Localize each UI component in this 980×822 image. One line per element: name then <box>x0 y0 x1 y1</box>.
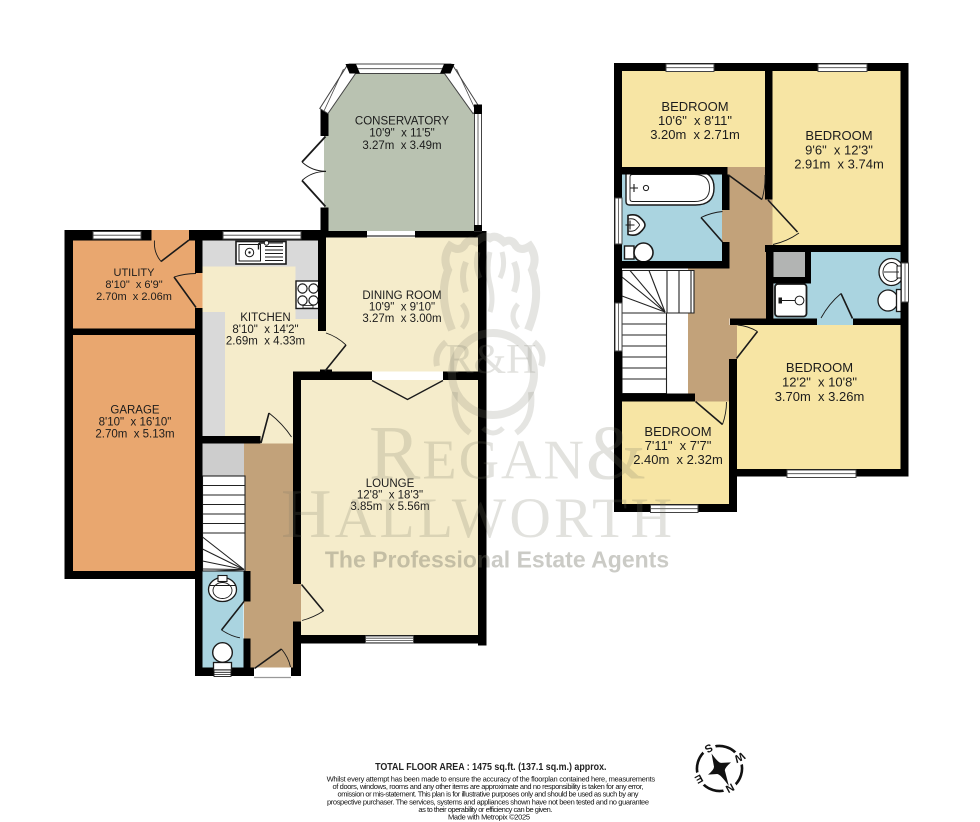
svg-text:8'10" x 14'2": 8'10" x 14'2" <box>232 324 298 336</box>
svg-text:BEDROOM: BEDROOM <box>644 424 711 439</box>
svg-text:The Professional Estate Agents: The Professional Estate Agents <box>325 547 669 573</box>
svg-text:2.70m x 2.06m: 2.70m x 2.06m <box>96 291 172 303</box>
svg-text:7'11" x 7'7": 7'11" x 7'7" <box>645 438 712 453</box>
svg-text:GARAGE: GARAGE <box>110 405 160 417</box>
svg-text:DINING ROOM: DINING ROOM <box>362 290 441 302</box>
svg-text:KITCHEN: KITCHEN <box>240 312 290 324</box>
svg-text:TOTAL FLOOR AREA : 1475 sq.ft.: TOTAL FLOOR AREA : 1475 sq.ft. (137.1 sq… <box>375 762 607 773</box>
svg-text:2.70m x 5.13m: 2.70m x 5.13m <box>95 429 174 441</box>
svg-text:Made with Metropix ©2025: Made with Metropix ©2025 <box>448 812 530 821</box>
svg-text:12'2" x 10'8": 12'2" x 10'8" <box>782 375 857 390</box>
svg-text:3.20m x 2.71m: 3.20m x 2.71m <box>650 127 740 142</box>
svg-text:R&H: R&H <box>445 337 536 383</box>
svg-text:3.70m x 3.26m: 3.70m x 3.26m <box>775 389 865 404</box>
svg-text:2.69m x 4.33m: 2.69m x 4.33m <box>226 336 305 348</box>
svg-text:BEDROOM: BEDROOM <box>805 128 872 143</box>
svg-text:CONSERVATORY: CONSERVATORY <box>355 116 449 128</box>
svg-text:10'6" x 8'11": 10'6" x 8'11" <box>658 113 732 128</box>
svg-text:3.27m x 3.00m: 3.27m x 3.00m <box>362 313 441 325</box>
svg-text:3.27m x 3.49m: 3.27m x 3.49m <box>362 140 441 152</box>
svg-text:BEDROOM: BEDROOM <box>661 99 728 114</box>
svg-text:2.91m x 3.74m: 2.91m x 3.74m <box>794 157 884 172</box>
svg-text:9'6" x 12'3": 9'6" x 12'3" <box>805 143 873 158</box>
svg-text:UTILITY: UTILITY <box>114 267 156 279</box>
svg-text:8'10" x 6'9": 8'10" x 6'9" <box>105 279 162 291</box>
svg-text:8'10" x 16'10": 8'10" x 16'10" <box>99 417 172 429</box>
svg-text:10'9" x 9'10": 10'9" x 9'10" <box>369 302 435 314</box>
svg-text:BEDROOM: BEDROOM <box>786 360 853 375</box>
svg-text:10'9" x 11'5": 10'9" x 11'5" <box>369 128 434 140</box>
svg-text:HALLWORTH: HALLWORTH <box>281 476 675 553</box>
